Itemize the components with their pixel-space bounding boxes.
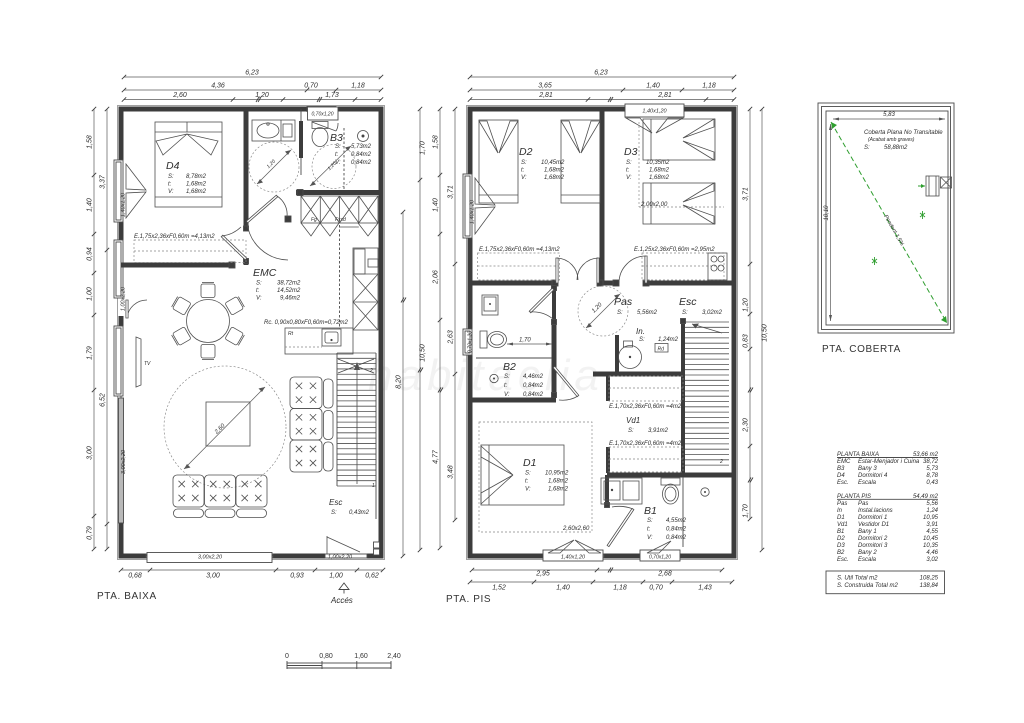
svg-text:S:: S: [521,160,527,166]
svg-text:2,81: 2,81 [538,92,553,99]
svg-text:S:: S: [628,428,634,434]
svg-text:1,68m2: 1,68m2 [186,189,207,195]
svg-text:D3: D3 [837,543,845,549]
svg-text:6,52: 6,52 [100,393,107,407]
svg-text:EMC: EMC [837,459,851,465]
svg-text:1,58: 1,58 [87,135,94,149]
svg-text:0,84m2: 0,84m2 [666,527,687,533]
svg-text:3,91: 3,91 [926,522,938,528]
svg-text:1,00: 1,00 [87,287,94,301]
svg-text:2,81: 2,81 [657,92,672,99]
svg-text:3,00: 3,00 [87,446,94,460]
svg-text:D4: D4 [166,160,180,172]
svg-text:V:: V: [525,487,531,493]
svg-text:10,95: 10,95 [923,515,939,521]
svg-text:0,70x1,20: 0,70x1,20 [312,112,334,118]
svg-text:1,79: 1,79 [87,346,94,360]
svg-text:4,77: 4,77 [433,449,440,464]
svg-text:D4: D4 [837,473,845,479]
svg-text:D2: D2 [837,536,845,542]
svg-text:1,68m2: 1,68m2 [649,175,670,181]
svg-text:D1: D1 [523,457,536,469]
svg-text:1,24m2: 1,24m2 [658,337,679,343]
svg-text:3,71: 3,71 [448,185,455,199]
svg-text:1,68m2: 1,68m2 [548,487,569,493]
svg-text:t:: t: [335,152,339,158]
svg-text:4,36: 4,36 [211,83,225,90]
svg-text:2,06: 2,06 [433,270,440,285]
svg-text:EMC: EMC [253,267,277,279]
svg-text:B1: B1 [837,529,844,535]
svg-text:0,43m2: 0,43m2 [349,510,370,516]
svg-text:Estar-Menjador i Cuina: Estar-Menjador i Cuina [858,459,920,465]
svg-text:E.1,75x2,36xF0,60m =4,13m2: E.1,75x2,36xF0,60m =4,13m2 [134,234,215,240]
svg-text:1,00: 1,00 [329,573,343,580]
svg-text:3,00x2,20: 3,00x2,20 [121,449,127,474]
svg-text:10,45: 10,45 [923,536,939,542]
svg-text:V:: V: [626,175,632,181]
svg-text:1,58: 1,58 [433,135,440,149]
svg-text:2: 2 [719,459,723,465]
svg-text:0,80: 0,80 [319,653,333,660]
svg-text:10,35m2: 10,35m2 [646,160,670,166]
svg-text:B3: B3 [837,466,845,472]
svg-text:10,45m2: 10,45m2 [541,160,565,166]
svg-text:Fxxd: Fxxd [335,217,346,223]
svg-text:5,73: 5,73 [926,466,938,472]
svg-text:B3: B3 [330,132,343,144]
svg-text:3,00x2,20: 3,00x2,20 [198,555,223,561]
svg-text:9,46m2: 9,46m2 [280,296,301,302]
svg-text:0,84m2: 0,84m2 [351,152,372,158]
svg-text:1,68m2: 1,68m2 [544,168,565,174]
svg-text:S:: S: [617,310,623,316]
svg-text:1,68m2: 1,68m2 [544,175,565,181]
svg-text:0,70: 0,70 [304,83,318,90]
svg-text:S:: S: [647,518,653,524]
svg-text:2,95: 2,95 [535,571,550,578]
svg-text:Dormitori 4: Dormitori 4 [858,473,888,479]
svg-text:PTA. PIS: PTA. PIS [446,594,491,605]
svg-text:t:: t: [504,383,508,389]
svg-text:10,95m2: 10,95m2 [545,471,569,477]
svg-text:D2: D2 [519,146,533,158]
svg-text:S:: S: [504,374,510,380]
svg-text:Dormitori 1: Dormitori 1 [858,515,887,521]
svg-text:Instal.lacions: Instal.lacions [858,508,893,514]
svg-text:4,46: 4,46 [926,550,938,556]
svg-text:Pas: Pas [614,296,633,308]
svg-text:S:: S: [331,510,337,516]
svg-text:0,68: 0,68 [128,573,142,580]
svg-text:S:: S: [864,145,870,151]
svg-text:TV: TV [144,361,151,367]
svg-text:5,56: 5,56 [926,501,938,507]
svg-text:In.: In. [636,327,645,336]
svg-text:S:: S: [639,337,645,343]
svg-text:0,84m2: 0,84m2 [666,535,687,541]
svg-text:Esc.: Esc. [837,557,849,563]
svg-text:4,46m2: 4,46m2 [523,374,544,380]
svg-text:3,37: 3,37 [100,174,107,189]
svg-text:2,60: 2,60 [172,92,187,99]
svg-text:B2: B2 [837,550,845,556]
svg-text:Rc. 0,90x0,80xF0,60m=0,72m2: Rc. 0,90x0,80xF0,60m=0,72m2 [264,320,349,326]
svg-text:PTA. BAIXA: PTA. BAIXA [97,591,157,602]
svg-text:t:: t: [168,182,172,188]
svg-text:2,40: 2,40 [387,653,401,660]
svg-text:t:: t: [521,168,525,174]
svg-text:Escala: Escala [858,557,877,563]
svg-text:58,88m2: 58,88m2 [884,145,908,151]
svg-text:1,20: 1,20 [743,298,750,312]
svg-text:3,00: 3,00 [206,573,220,580]
svg-text:6,23: 6,23 [245,70,259,77]
svg-text:PTA. COBERTA: PTA. COBERTA [822,344,901,355]
svg-text:1,70: 1,70 [519,338,531,344]
svg-text:Vestidor D1: Vestidor D1 [858,522,889,528]
svg-text:0,70x1,20: 0,70x1,20 [649,555,671,561]
svg-text:0,84m2: 0,84m2 [523,383,544,389]
svg-text:S. Util Total m2: S. Util Total m2 [837,576,878,582]
svg-text:1,43: 1,43 [698,585,712,592]
svg-text:6,23: 6,23 [594,70,608,77]
svg-text:10,50: 10,50 [420,344,427,362]
svg-text:1,73: 1,73 [325,92,339,99]
svg-text:1,24: 1,24 [926,508,938,514]
svg-text:Vd1: Vd1 [626,416,640,425]
svg-text:S:: S: [626,160,632,166]
svg-text:Bany 2: Bany 2 [858,550,877,556]
svg-text:1,70: 1,70 [420,141,427,155]
svg-text:1,60: 1,60 [354,653,368,660]
svg-text:3,65: 3,65 [538,83,552,90]
svg-text:V:: V: [521,175,527,181]
svg-text:1,18: 1,18 [351,83,365,90]
svg-text:D3: D3 [624,146,638,158]
svg-text:4,55: 4,55 [926,529,938,535]
svg-text:Bany 3: Bany 3 [858,466,877,472]
svg-text:1,40: 1,40 [87,198,94,212]
svg-text:V:: V: [256,296,262,302]
svg-text:Esc: Esc [679,296,697,308]
svg-text:0,70x1,20: 0,70x1,20 [468,331,474,353]
svg-text:1,18: 1,18 [702,83,716,90]
svg-text:8,78: 8,78 [926,473,938,479]
svg-text:3,48: 3,48 [448,465,455,479]
svg-text:Coberta Plana No Transitable: Coberta Plana No Transitable [864,130,943,136]
svg-text:10,50: 10,50 [762,324,769,342]
svg-text:1,68m2: 1,68m2 [649,168,670,174]
svg-text:S:: S: [682,310,688,316]
svg-text:108,25: 108,25 [920,576,939,582]
svg-text:1,70: 1,70 [743,504,750,518]
svg-text:0: 0 [285,653,289,660]
svg-text:5,83: 5,83 [883,112,895,118]
svg-text:2,00x2,00: 2,00x2,00 [640,202,668,208]
svg-text:Accés: Accés [330,596,353,605]
svg-text:B2: B2 [503,361,516,373]
svg-text:t:: t: [256,288,260,294]
svg-text:1,40: 1,40 [433,198,440,212]
svg-text:38,72m2: 38,72m2 [277,281,301,287]
svg-text:3,91m2: 3,91m2 [648,428,669,434]
svg-text:Bany 1: Bany 1 [858,529,877,535]
svg-text:S:: S: [525,471,531,477]
svg-text:2: 2 [369,368,373,374]
svg-text:10,35: 10,35 [923,543,939,549]
svg-text:B1: B1 [644,505,657,517]
svg-text:t:: t: [647,527,651,533]
svg-text:Pas: Pas [858,501,868,507]
svg-text:1,18: 1,18 [613,585,627,592]
svg-text:2,60x2,60: 2,60x2,60 [562,526,590,532]
svg-text:S:: S: [168,174,174,180]
svg-text:Rt: Rt [288,331,294,337]
svg-text:D1: D1 [837,515,845,521]
svg-text:t:: t: [525,479,529,485]
svg-text:2,68: 2,68 [657,571,672,578]
svg-text:0,84m2: 0,84m2 [351,160,372,166]
svg-text:S:: S: [256,281,262,287]
svg-text:8,78m2: 8,78m2 [186,174,207,180]
svg-text:3,02: 3,02 [926,557,938,563]
svg-text:5,73m2: 5,73m2 [351,144,372,150]
svg-text:V:: V: [504,392,510,398]
svg-text:t:: t: [626,168,630,174]
svg-text:Esc: Esc [329,498,342,507]
svg-text:1,52: 1,52 [492,585,506,592]
svg-text:0,94: 0,94 [87,247,94,261]
svg-text:1,40: 1,40 [646,83,660,90]
svg-text:0,83: 0,83 [743,334,750,348]
svg-text:Esc.: Esc. [837,480,849,486]
svg-text:14,52m2: 14,52m2 [277,288,301,294]
svg-text:Pas: Pas [837,501,847,507]
svg-text:Dormitori 2: Dormitori 2 [858,536,888,542]
svg-text:E.1,70x2,36xF0,60m =4m2: E.1,70x2,36xF0,60m =4m2 [609,441,682,447]
svg-text:Dormitori 3: Dormitori 3 [858,543,888,549]
svg-text:1,68m2: 1,68m2 [548,479,569,485]
svg-text:1,40: 1,40 [556,585,570,592]
svg-text:1,40x1,20: 1,40x1,20 [561,555,586,561]
svg-text:10,10: 10,10 [824,205,830,221]
svg-text:5,56m2: 5,56m2 [637,310,658,316]
svg-text:2,63: 2,63 [448,330,455,345]
svg-text:0,93: 0,93 [290,573,304,580]
svg-text:(Acabat amb graves): (Acabat amb graves) [868,137,915,143]
svg-text:S. Construida Total m2: S. Construida Total m2 [837,583,898,589]
svg-text:0,79: 0,79 [87,526,94,540]
svg-text:1,00x2,20: 1,00x2,20 [328,555,353,561]
svg-text:138,84: 138,84 [920,583,939,589]
svg-text:0,84m2: 0,84m2 [523,392,544,398]
svg-text:8,20: 8,20 [396,375,403,389]
svg-text:0,70: 0,70 [649,585,663,592]
svg-text:Fg: Fg [311,217,317,223]
svg-text:E.1,70x2,36xF0,60m =4m2: E.1,70x2,36xF0,60m =4m2 [609,404,682,410]
svg-text:0,62: 0,62 [365,573,379,580]
svg-text:4,55m2: 4,55m2 [666,518,687,524]
svg-text:Escala: Escala [858,480,877,486]
svg-text:Vd1: Vd1 [837,522,848,528]
svg-text:2,30: 2,30 [743,418,750,433]
svg-text:1,68m2: 1,68m2 [186,182,207,188]
svg-text:Rd: Rd [658,347,665,353]
svg-text:3,71: 3,71 [743,187,750,201]
svg-text:V:: V: [647,535,653,541]
svg-text:1,20: 1,20 [255,92,269,99]
svg-text:V:: V: [168,189,174,195]
svg-text:38,72: 38,72 [923,459,939,465]
svg-text:E.1,75x2,36xF0,60m =4,13m2: E.1,75x2,36xF0,60m =4,13m2 [479,247,560,253]
svg-text:1,40x1,20: 1,40x1,20 [642,109,667,115]
svg-text:In: In [837,508,843,514]
svg-text:3,02m2: 3,02m2 [702,310,723,316]
svg-text:E.1,25x2,36xF0,60m =2,95m2: E.1,25x2,36xF0,60m =2,95m2 [634,247,715,253]
svg-text:0,43: 0,43 [926,480,938,486]
